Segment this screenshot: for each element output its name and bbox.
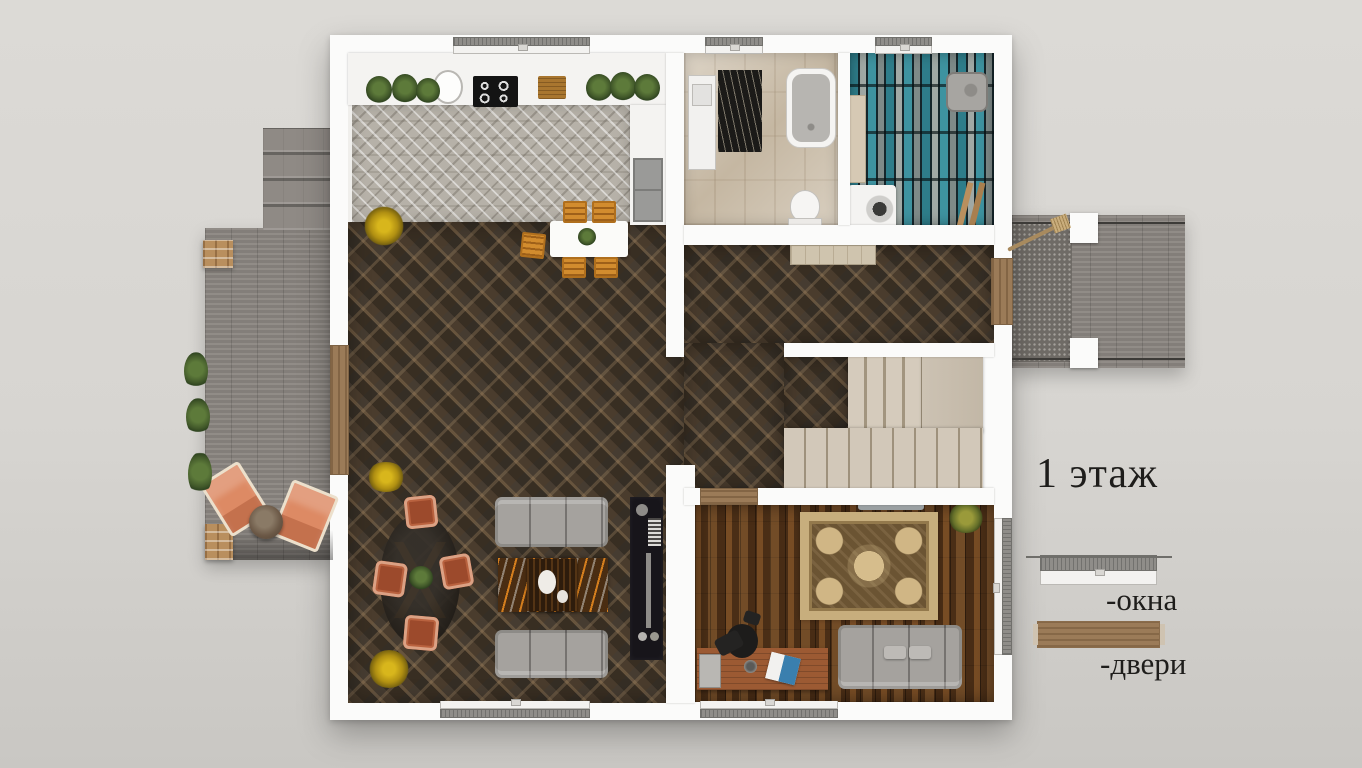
legend-door-cap-left bbox=[1033, 624, 1038, 645]
porch-edge-top bbox=[1012, 222, 1185, 224]
tv-screen bbox=[646, 553, 651, 628]
stove-cooktop bbox=[473, 76, 518, 107]
console-vase bbox=[638, 632, 647, 641]
kitchen-plant-2 bbox=[392, 74, 418, 104]
living-sofa-bottom bbox=[495, 630, 608, 678]
laundry-cabinet bbox=[848, 95, 866, 183]
wall-kitchen-bathroom bbox=[666, 53, 684, 357]
office-sofa-pillow-2 bbox=[909, 646, 931, 659]
wall-above-stairs bbox=[784, 343, 994, 357]
bathtub bbox=[786, 68, 836, 148]
window-glass bbox=[700, 709, 838, 718]
legend-door-symbol bbox=[1037, 621, 1160, 648]
door-office bbox=[700, 488, 758, 505]
stairs-upper-flight bbox=[848, 357, 922, 428]
plant-yellow-kitchen bbox=[364, 206, 404, 246]
dining-chair-3 bbox=[520, 232, 546, 259]
door-entry bbox=[991, 258, 1013, 325]
vanity-sink bbox=[692, 84, 712, 106]
window-laundry-top bbox=[875, 37, 932, 54]
kitchen-plant-3 bbox=[416, 78, 440, 104]
stairs-landing bbox=[922, 357, 983, 433]
office-plant bbox=[948, 503, 984, 533]
window-office-right bbox=[994, 518, 1012, 655]
coffee-table-plate-2 bbox=[557, 590, 568, 603]
console-bowl bbox=[636, 504, 648, 516]
wall-bathroom-hall bbox=[684, 225, 994, 245]
plant-yellow-living-2 bbox=[368, 650, 410, 688]
kitchen-plant-6 bbox=[634, 74, 660, 102]
terrace-side-table bbox=[249, 505, 283, 539]
window-sill bbox=[453, 46, 590, 54]
terrace-planter-top bbox=[203, 240, 233, 268]
shower-unit bbox=[946, 72, 988, 112]
door-terrace bbox=[330, 345, 349, 475]
window-bathroom-top bbox=[705, 37, 763, 54]
legend-window-symbol bbox=[1040, 555, 1157, 585]
oval-table-plant bbox=[409, 566, 433, 590]
window-glass bbox=[440, 709, 590, 718]
terrace-plant-3 bbox=[188, 452, 212, 496]
kitchen-plant-5 bbox=[610, 72, 636, 102]
speaker-grill bbox=[648, 518, 661, 546]
window-kitchen-top bbox=[453, 37, 590, 54]
floor-title: 1 этаж bbox=[1036, 450, 1158, 498]
plant-yellow-living-1 bbox=[366, 462, 406, 492]
floor-plan-scene: 1 этаж -окна -двери bbox=[0, 0, 1362, 768]
office-rug bbox=[800, 512, 938, 620]
legend-window-label: -окна bbox=[1106, 582, 1177, 618]
window-sill bbox=[440, 701, 590, 709]
window-living-bottom bbox=[440, 701, 590, 718]
window-sill bbox=[994, 518, 1002, 655]
window-office-bottom bbox=[700, 701, 838, 718]
stair-well-floor bbox=[784, 357, 850, 428]
console-ornament bbox=[650, 632, 659, 641]
living-chair-left bbox=[372, 560, 408, 598]
coffee-table-plate-1 bbox=[538, 570, 556, 594]
terrace-plant-1 bbox=[184, 352, 208, 390]
cutting-board bbox=[538, 76, 566, 99]
living-chair-top bbox=[403, 494, 438, 529]
window-glass bbox=[1002, 518, 1012, 655]
window-sill bbox=[705, 46, 763, 54]
dining-chair-4 bbox=[562, 257, 586, 278]
porch-edge-bottom bbox=[1012, 358, 1185, 360]
office-chair bbox=[716, 612, 762, 662]
porch-pillar-bottom bbox=[1070, 338, 1098, 368]
window-sill bbox=[875, 46, 932, 54]
living-chair-bottom bbox=[403, 615, 440, 652]
legend-door-label: -двери bbox=[1100, 646, 1186, 682]
bathroom-accent-panel bbox=[718, 70, 762, 152]
dining-table-plant bbox=[578, 228, 596, 246]
wall-bathroom-laundry bbox=[838, 53, 850, 225]
kitchen-double-sink bbox=[633, 158, 663, 222]
window-sill bbox=[700, 701, 838, 709]
kitchen-floor bbox=[352, 105, 630, 222]
legend-window-wall-line bbox=[1026, 556, 1172, 558]
living-sofa-top bbox=[495, 497, 608, 547]
living-chair-right bbox=[438, 553, 474, 591]
terrace-plant-2 bbox=[186, 398, 210, 436]
dining-chair-5 bbox=[594, 257, 618, 278]
hall-bench bbox=[790, 245, 876, 265]
legend-door-cap-right bbox=[1160, 624, 1165, 645]
kitchen-plant-1 bbox=[366, 76, 392, 104]
terrace-steps bbox=[263, 128, 333, 230]
corridor-floor bbox=[684, 343, 784, 490]
dining-chair-2 bbox=[592, 201, 616, 223]
bathtub-basin bbox=[792, 74, 830, 142]
office-sofa-pillow-1 bbox=[884, 646, 906, 659]
kitchen-plant-4 bbox=[586, 74, 612, 102]
stairs-lower-flight bbox=[784, 428, 983, 490]
porch-pillar-top bbox=[1070, 213, 1098, 243]
dining-chair-1 bbox=[563, 201, 587, 223]
